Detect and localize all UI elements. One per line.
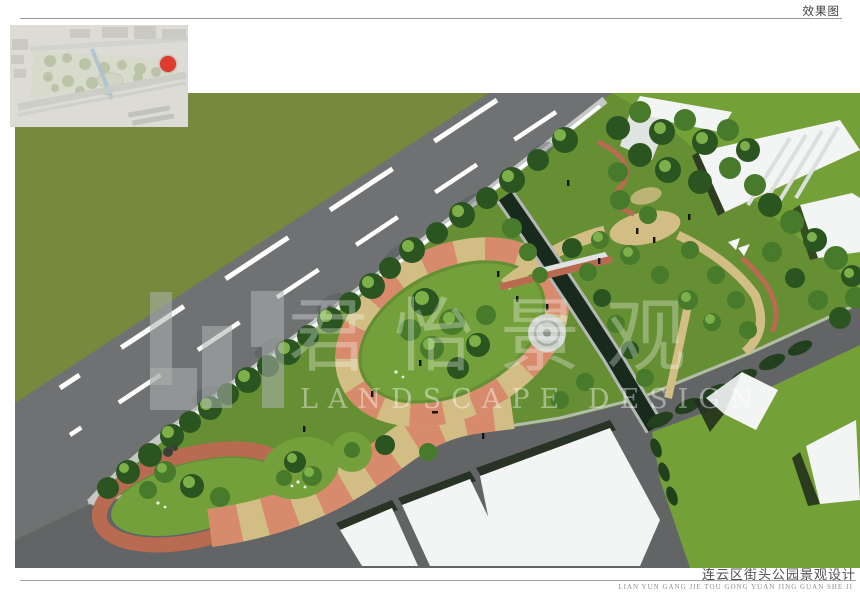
project-title-pinyin: LIAN YUN GANG JIE TOU GONG YUAN JING GUA…	[0, 583, 853, 591]
main-render	[15, 93, 860, 568]
inset-map-plan	[10, 25, 188, 127]
location-inset-map	[10, 25, 188, 127]
location-marker-icon	[160, 56, 176, 72]
fountain-plaza	[528, 314, 566, 352]
presentation-sheet: 效果图	[0, 0, 860, 609]
sheet-type-label: 效果图	[0, 3, 840, 19]
header-rule	[20, 18, 842, 19]
render-scene	[15, 93, 860, 568]
footer-rule	[20, 580, 856, 581]
